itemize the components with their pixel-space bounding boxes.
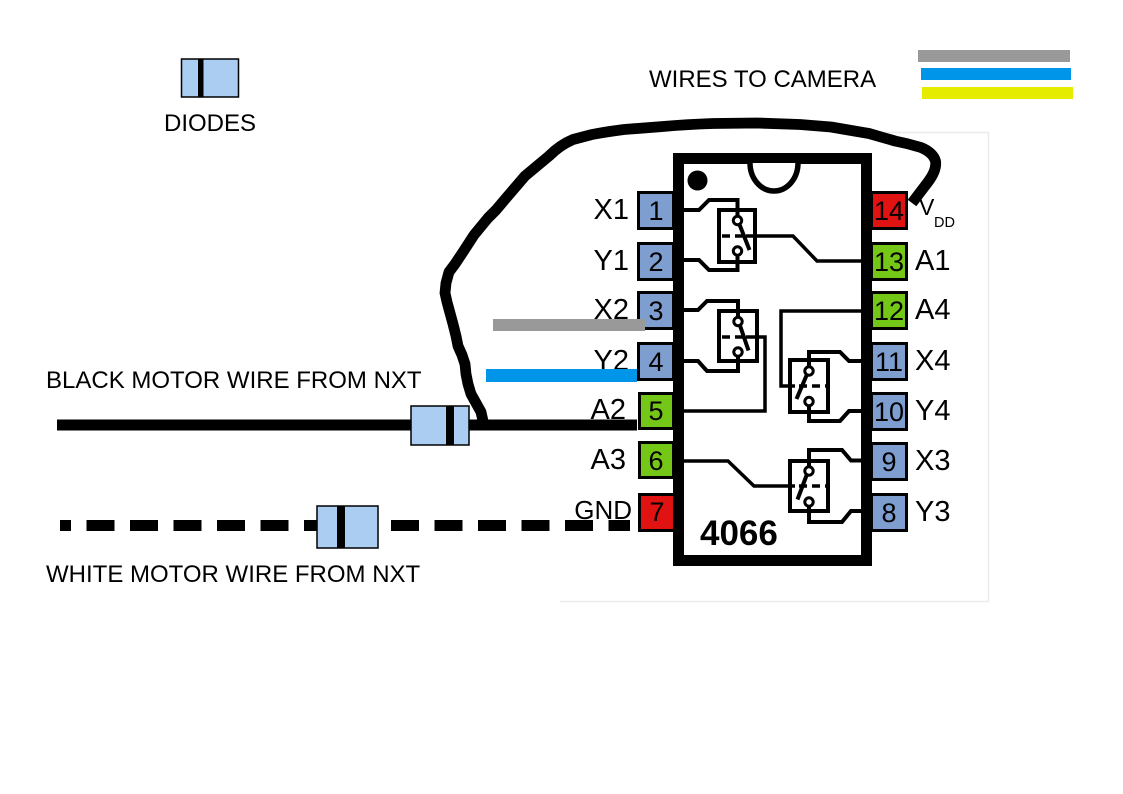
svg-text:Y4: Y4 (915, 395, 950, 427)
svg-text:A4: A4 (915, 294, 950, 326)
svg-text:7: 7 (649, 497, 664, 527)
svg-text:Y3: Y3 (915, 496, 950, 528)
svg-text:4066: 4066 (700, 514, 778, 553)
svg-text:DIODES: DIODES (164, 110, 256, 137)
svg-text:Y1: Y1 (594, 245, 629, 277)
svg-text:DD: DD (934, 215, 955, 231)
svg-text:X3: X3 (915, 445, 950, 477)
svg-text:WHITE MOTOR WIRE FROM NXT: WHITE MOTOR WIRE FROM NXT (46, 561, 421, 588)
svg-text:14: 14 (874, 196, 904, 226)
svg-text:X4: X4 (915, 345, 950, 377)
svg-text:11: 11 (875, 347, 903, 377)
svg-text:8: 8 (881, 498, 896, 528)
svg-text:9: 9 (881, 447, 896, 477)
svg-text:5: 5 (648, 396, 663, 426)
svg-text:A3: A3 (591, 444, 626, 476)
svg-text:4: 4 (648, 347, 663, 377)
svg-text:WIRES TO CAMERA: WIRES TO CAMERA (649, 66, 876, 93)
svg-text:13: 13 (874, 247, 904, 277)
svg-text:10: 10 (874, 397, 904, 427)
svg-text:X1: X1 (594, 194, 629, 226)
svg-text:BLACK MOTOR WIRE FROM NXT: BLACK MOTOR WIRE FROM NXT (46, 367, 422, 394)
svg-text:2: 2 (648, 247, 663, 277)
svg-text:3: 3 (648, 296, 663, 326)
svg-text:12: 12 (874, 296, 904, 326)
svg-text:6: 6 (648, 446, 663, 476)
svg-text:A1: A1 (915, 245, 950, 277)
svg-text:1: 1 (648, 196, 663, 226)
